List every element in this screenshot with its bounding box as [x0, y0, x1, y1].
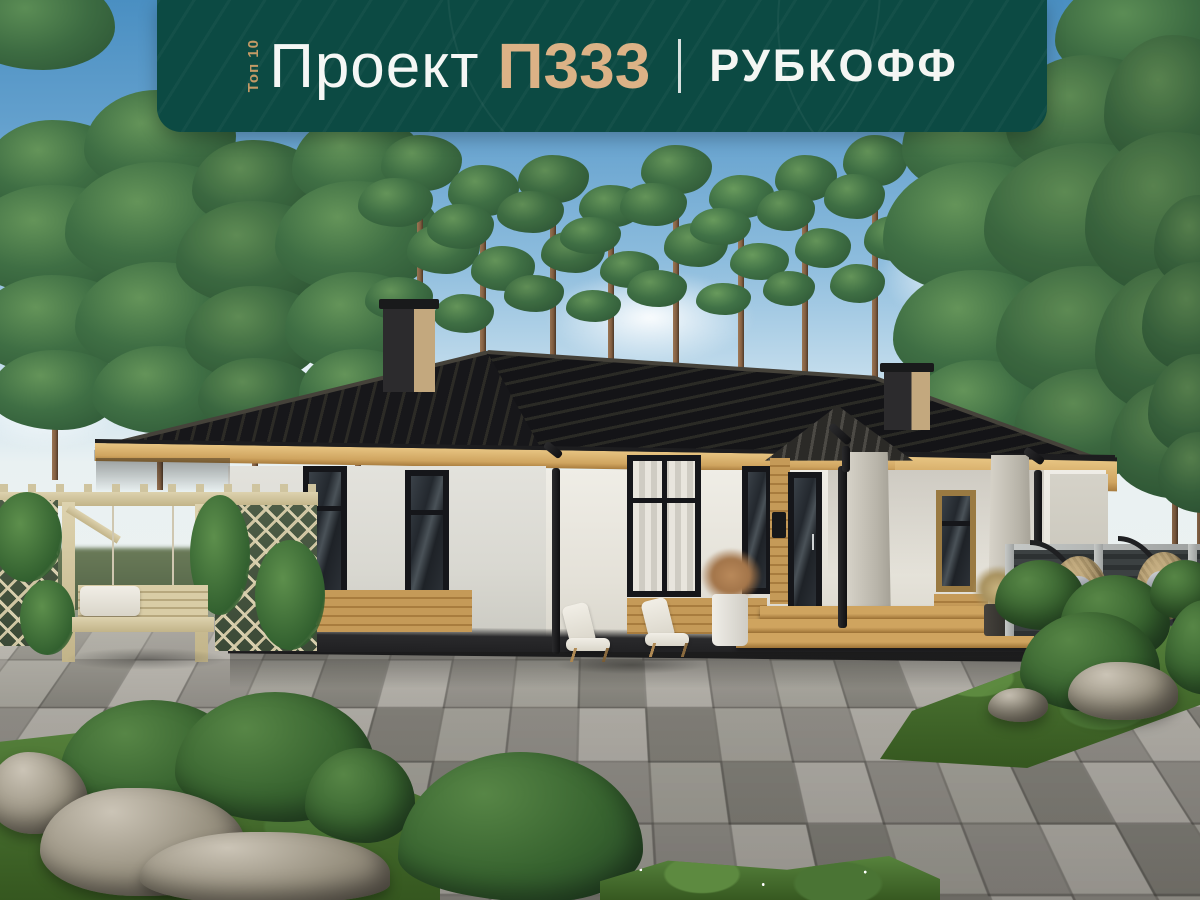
brand-divider — [678, 39, 681, 93]
chimney — [383, 304, 435, 392]
pine-foliage — [434, 294, 494, 333]
wall-lamp — [772, 512, 786, 538]
window-mullion — [662, 461, 667, 591]
porch-column — [845, 452, 891, 624]
brand-logo: РУБКОФФ — [709, 40, 958, 92]
title-banner: Топ 10 Проект П333 РУБКОФФ — [157, 0, 1047, 132]
pine-foliage — [504, 275, 564, 311]
planter — [712, 594, 748, 646]
project-title: Проект — [269, 31, 479, 102]
pine-foliage — [427, 204, 494, 249]
pine-foliage — [560, 217, 621, 254]
downspout — [552, 468, 560, 654]
pine-foliage — [620, 183, 687, 227]
window-bar — [942, 521, 970, 526]
pine-foliage — [627, 270, 687, 308]
pine-foliage — [690, 208, 751, 246]
door-handle — [812, 534, 814, 550]
ground-shadow — [556, 656, 706, 674]
chimney-cap — [880, 363, 934, 372]
window — [936, 490, 976, 592]
house-exterior-photo: Топ 10 Проект П333 РУБКОФФ — [0, 0, 1200, 900]
banner-content: Топ 10 Проект П333 РУБКОФФ — [157, 0, 1047, 132]
boulder — [1068, 662, 1178, 720]
chimney — [884, 368, 930, 430]
window — [627, 455, 701, 597]
window-bar — [411, 510, 443, 515]
window-bar — [633, 498, 695, 503]
pine-foliage — [696, 283, 751, 316]
swing-rope — [172, 506, 174, 590]
ivy — [20, 580, 75, 655]
chimney-cap — [379, 299, 439, 309]
downspout-elbow — [842, 446, 850, 472]
window — [405, 470, 449, 604]
window-glass — [411, 476, 443, 598]
swing-rope — [112, 506, 114, 590]
lounge-chair-legs — [645, 643, 694, 657]
pine-foliage — [830, 264, 885, 303]
wood-panel — [300, 590, 472, 632]
top10-badge: Топ 10 — [245, 39, 262, 92]
downspout — [838, 466, 847, 628]
pine-foliage — [824, 174, 885, 219]
bench-cushion — [80, 586, 140, 616]
boulder — [988, 688, 1048, 722]
swing-bench-seat — [72, 617, 214, 632]
project-code: П333 — [498, 29, 651, 103]
pine-foliage — [757, 190, 815, 231]
ivy — [255, 540, 325, 650]
entry-door — [788, 472, 822, 614]
pine-tree — [1145, 195, 1200, 565]
ground-shadow — [66, 648, 226, 670]
window-glass — [942, 496, 970, 586]
poster: Топ 10 Проект П333 РУБКОФФ — [0, 0, 1200, 900]
